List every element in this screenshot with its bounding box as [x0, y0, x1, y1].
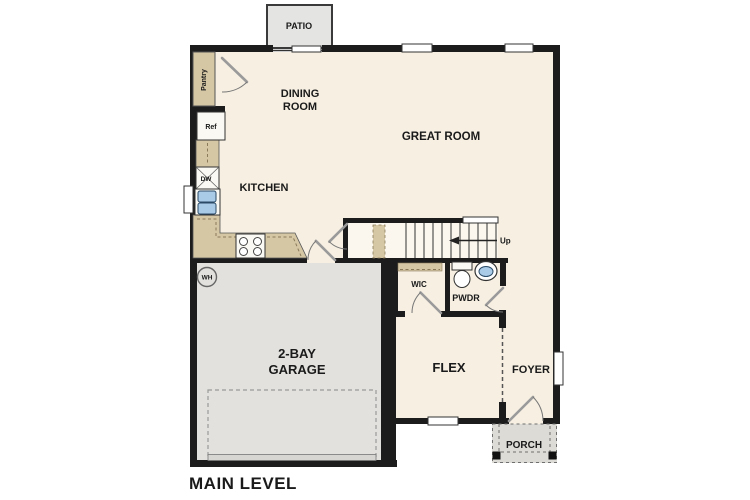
- garage-door: [208, 455, 376, 461]
- stair-railing: [463, 217, 498, 223]
- wall-stairs-top: [343, 218, 463, 223]
- garage-label-line2: GARAGE: [268, 362, 325, 377]
- flex-label: FLEX: [432, 360, 466, 375]
- wall-flex-top-a: [381, 311, 405, 317]
- burner: [240, 238, 248, 246]
- garage-label-line1: 2-BAY: [278, 346, 316, 361]
- toilet-bowl: [454, 271, 470, 288]
- powder-sink-basin: [479, 267, 493, 277]
- sink-basin-bottom: [198, 203, 216, 214]
- pantry-label: Pantry: [201, 69, 208, 91]
- floor-plan-page: PATIO DINING ROOM GREAT ROOM KITCHEN Pan…: [0, 0, 750, 500]
- wall-kitchen-garage-a: [190, 258, 307, 263]
- floor-plan: PATIO DINING ROOM GREAT ROOM KITCHEN Pan…: [0, 0, 750, 500]
- wall-flex-top-b: [441, 311, 501, 317]
- burner: [254, 248, 262, 256]
- dining-room-label-line2: ROOM: [283, 101, 317, 113]
- porch-post-left: [493, 452, 501, 460]
- wic-label: WIC: [411, 280, 427, 289]
- window-great-room-top-1: [402, 44, 432, 52]
- burner: [240, 248, 248, 256]
- refrigerator-label: Ref: [205, 124, 217, 131]
- window-great-room-top-2: [505, 44, 533, 52]
- plan-title: MAIN LEVEL: [189, 474, 297, 493]
- toilet: [452, 262, 472, 288]
- porch-post-right: [549, 452, 557, 460]
- dishwasher-label: DW: [201, 176, 213, 183]
- cooktop: [236, 234, 265, 258]
- wall-pwdr-right: [500, 258, 506, 286]
- kitchen-label: KITCHEN: [240, 182, 289, 194]
- wall-wic-right: [445, 263, 450, 313]
- powder-sink: [475, 262, 497, 281]
- patio-label: PATIO: [286, 21, 312, 31]
- wall-top-left: [190, 45, 273, 52]
- wall-flex-bottom-b: [458, 418, 509, 424]
- dining-room-label-line1: DINING: [281, 88, 320, 100]
- foyer-label: FOYER: [512, 364, 550, 376]
- sink-basin-top: [198, 191, 216, 202]
- understair-shelf: [373, 225, 385, 258]
- wall-opening-cap-top: [499, 310, 506, 328]
- up-label: Up: [500, 237, 511, 246]
- kitchen-sink: [195, 189, 220, 215]
- patio-sliding-door: [292, 46, 321, 52]
- great-room-label: GREAT ROOM: [402, 131, 480, 143]
- wall-wic-left: [393, 263, 398, 313]
- water-heater-label: WH: [202, 275, 213, 282]
- pwdr-label: PWDR: [452, 293, 480, 303]
- window-foyer-right: [554, 352, 563, 385]
- toilet-tank: [452, 262, 472, 270]
- porch-label: PORCH: [506, 440, 542, 451]
- window-flex-bottom: [428, 417, 458, 425]
- wall-foyer-bottom: [543, 418, 560, 424]
- burner: [254, 238, 262, 246]
- wall-flex-bottom-a: [396, 418, 428, 424]
- window-kitchen-sink: [184, 186, 193, 213]
- wall-garage-bottom: [190, 460, 397, 467]
